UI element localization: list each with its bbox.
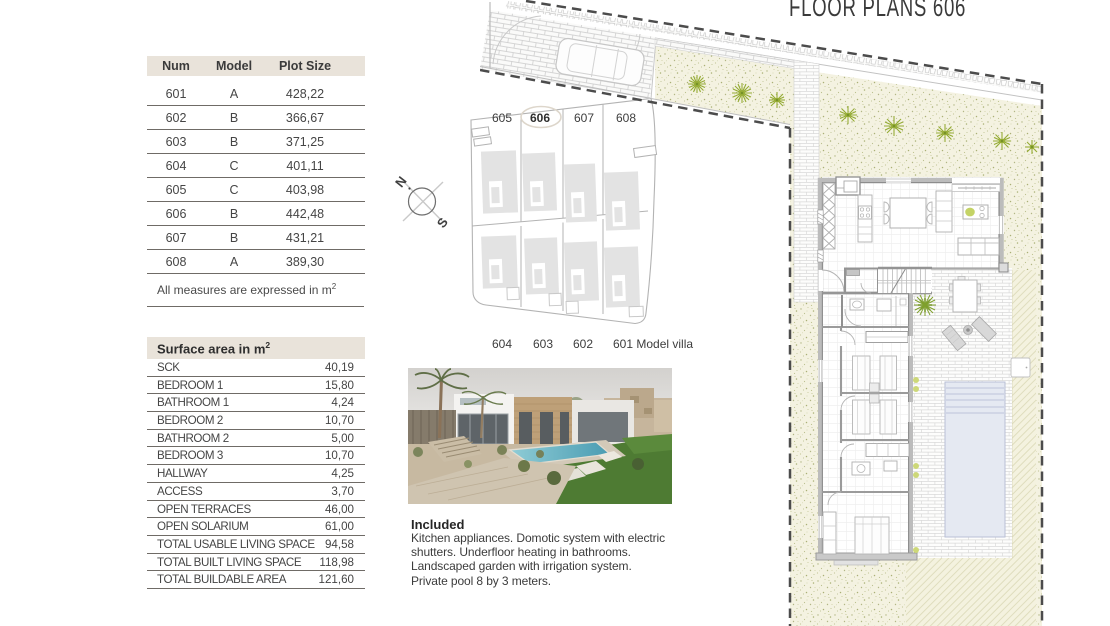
- svg-text:N: N: [392, 173, 410, 190]
